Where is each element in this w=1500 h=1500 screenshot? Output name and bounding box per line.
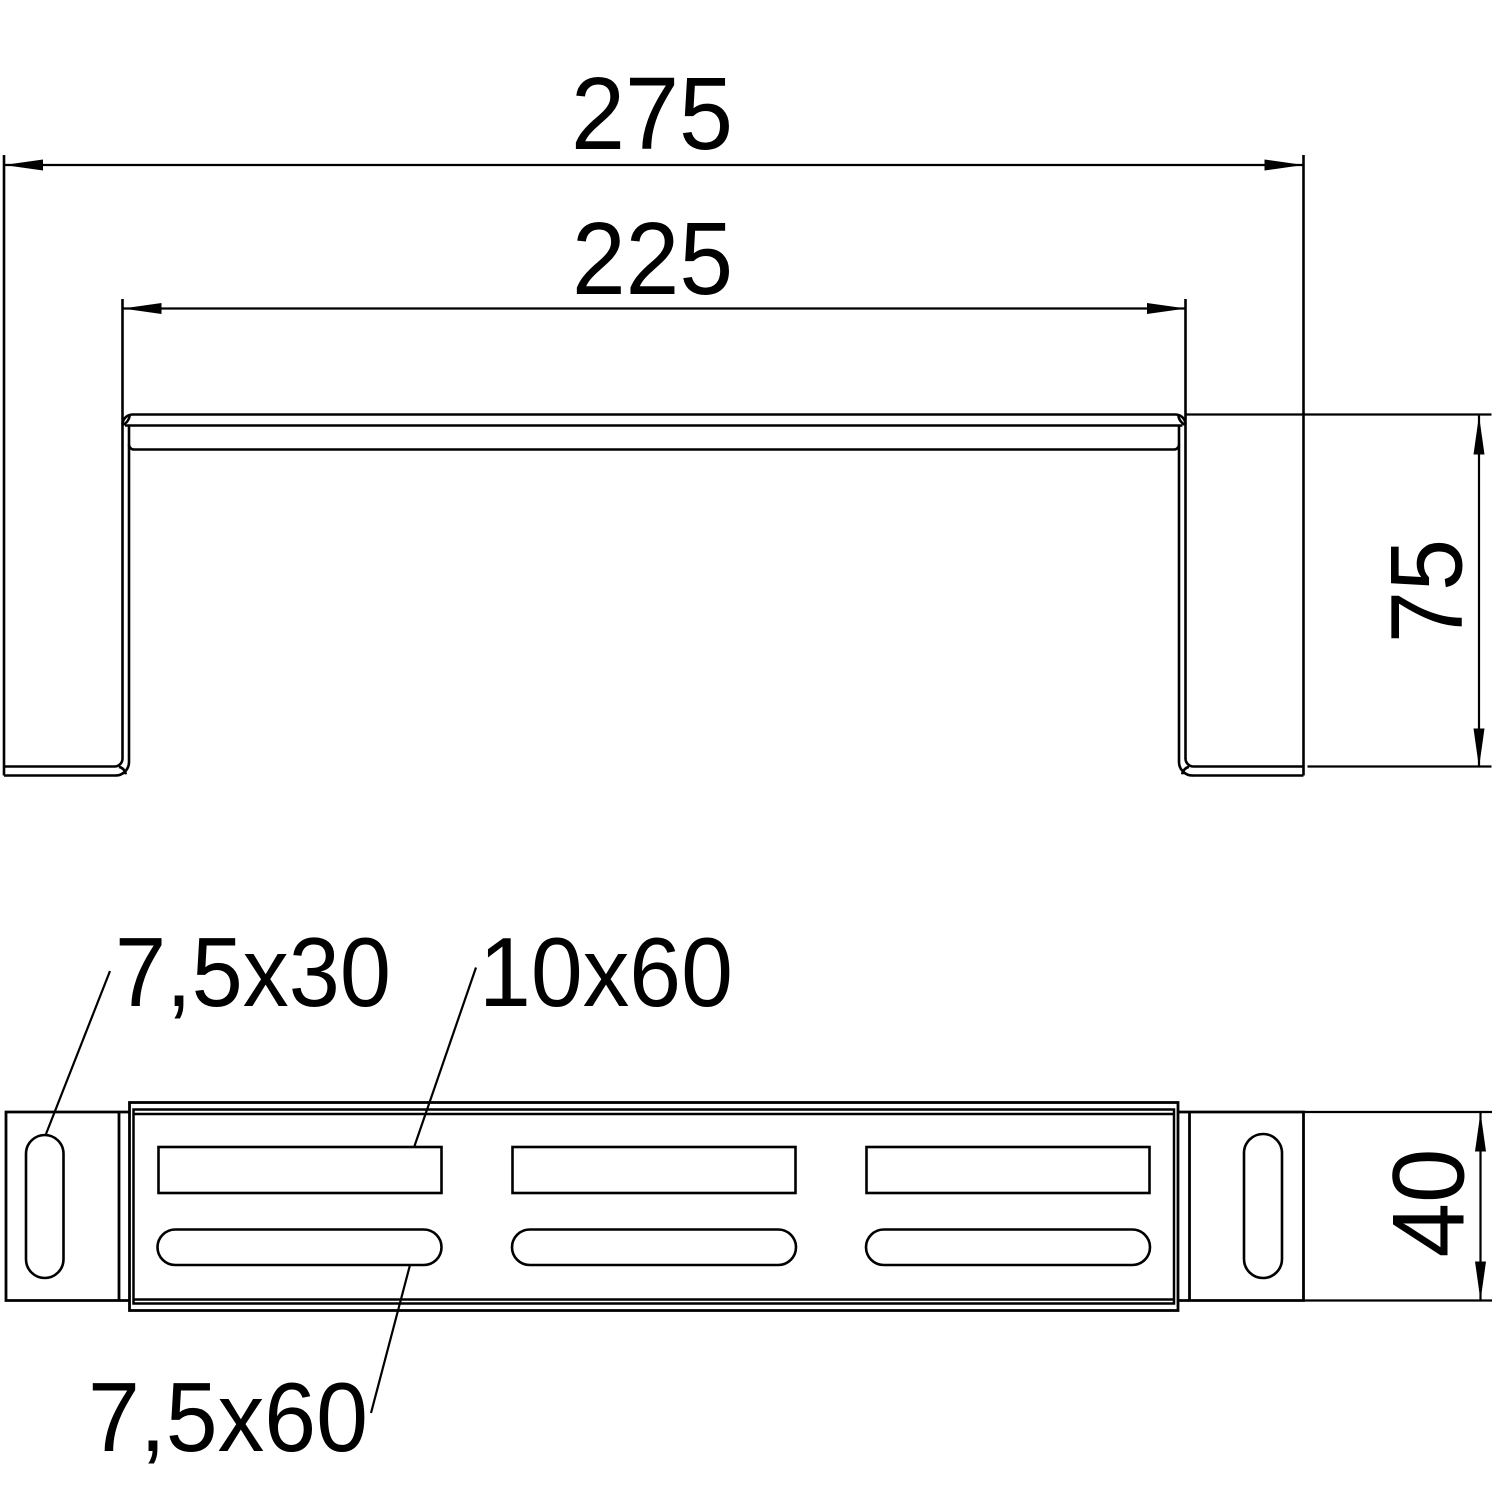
svg-text:10x60: 10x60 (479, 917, 733, 1027)
svg-text:7,5x60: 7,5x60 (88, 1362, 368, 1472)
svg-text:7,5x30: 7,5x30 (115, 917, 391, 1027)
svg-text:75: 75 (1370, 539, 1484, 643)
svg-text:225: 225 (572, 201, 733, 316)
svg-text:275: 275 (571, 56, 733, 171)
svg-text:40: 40 (1372, 1149, 1486, 1258)
